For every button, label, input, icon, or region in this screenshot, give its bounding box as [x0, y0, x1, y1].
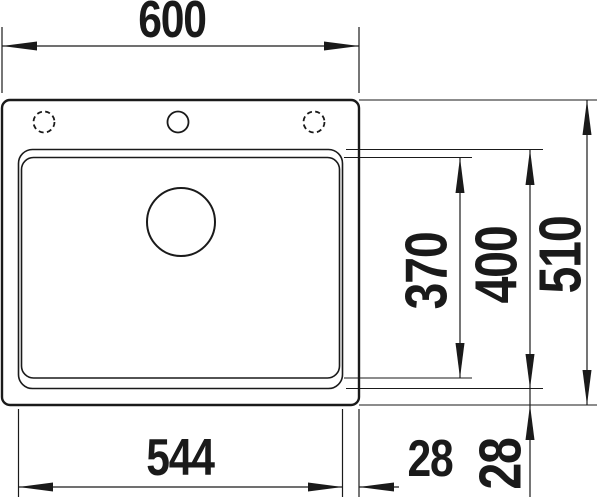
- dim-total-width-label: 600: [138, 0, 205, 46]
- tap-hole-center-icon: [168, 112, 189, 133]
- dim-total-depth-label: 510: [532, 216, 591, 293]
- dim-margin-right-label: 28: [408, 433, 453, 485]
- dim-rim-depth-label: 400: [468, 226, 527, 303]
- bowl-inner-edge: [22, 158, 340, 379]
- sink-outline: [2, 100, 359, 405]
- tap-hole-left-icon: [34, 112, 55, 133]
- dim-bowl-depth-label: 370: [398, 232, 457, 309]
- dim-margin-front-label: 28: [472, 438, 531, 489]
- dim-rim-width-label: 544: [146, 432, 213, 484]
- bowl-rim: [19, 150, 343, 389]
- drain-hole: [147, 188, 215, 256]
- sink-technical-drawing: 600 544 28 370 400 510 28: [0, 0, 600, 499]
- tap-hole-right-icon: [304, 112, 325, 133]
